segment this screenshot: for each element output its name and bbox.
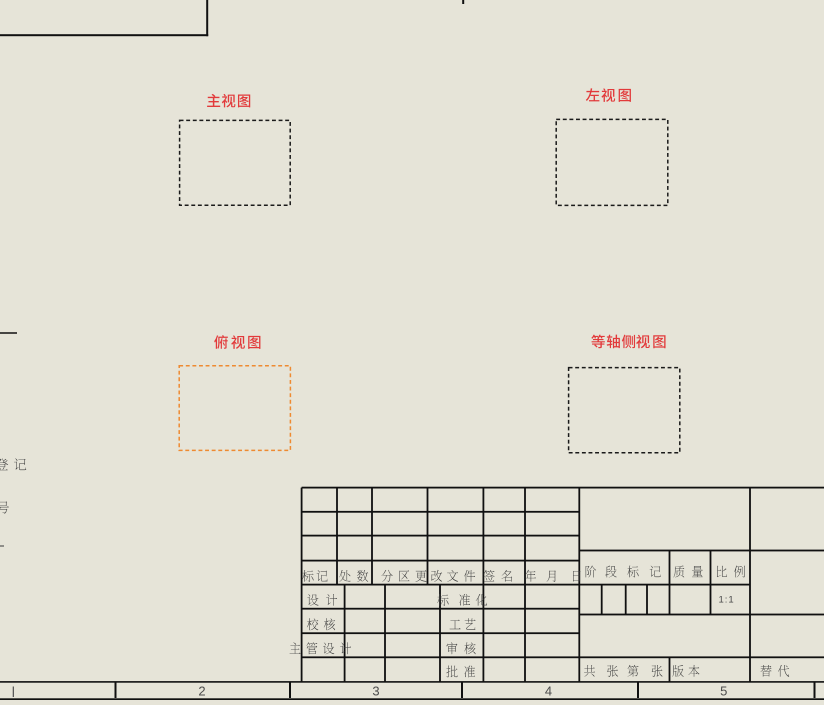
svg-text:5: 5 — [720, 684, 727, 699]
svg-text:2: 2 — [198, 684, 205, 699]
svg-text:3: 3 — [372, 684, 379, 699]
svg-text:1:1: 1:1 — [719, 595, 735, 606]
svg-text:4: 4 — [545, 684, 552, 699]
